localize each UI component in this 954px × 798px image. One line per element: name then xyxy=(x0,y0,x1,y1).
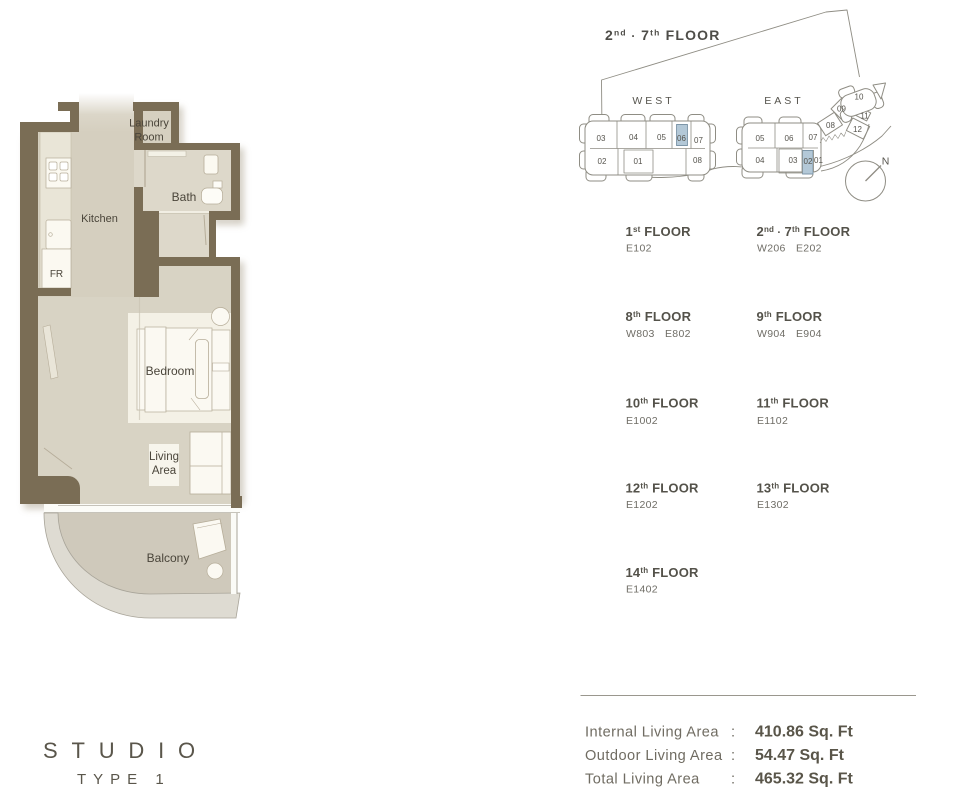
svg-text:14th FLOOR: 14th FLOOR xyxy=(626,565,700,580)
svg-text:Total Living Area: Total Living Area xyxy=(585,772,700,788)
svg-text:10th FLOOR: 10th FLOOR xyxy=(626,396,700,411)
svg-text:WEST: WEST xyxy=(632,95,674,107)
svg-text:04: 04 xyxy=(629,133,638,142)
svg-text::: : xyxy=(731,725,736,741)
svg-text:07: 07 xyxy=(694,136,703,145)
svg-text:Internal Living Area: Internal Living Area xyxy=(585,725,719,741)
svg-text:2nd · 7th FLOOR: 2nd · 7th FLOOR xyxy=(757,224,851,239)
svg-text:05: 05 xyxy=(657,133,666,142)
svg-text:Bedroom: Bedroom xyxy=(146,364,195,378)
svg-text:04: 04 xyxy=(756,156,765,165)
svg-text:Balcony: Balcony xyxy=(147,551,190,565)
svg-text:06: 06 xyxy=(677,134,686,143)
svg-text:1st FLOOR: 1st FLOOR xyxy=(626,224,692,239)
svg-text:12: 12 xyxy=(853,125,862,134)
svg-text:11: 11 xyxy=(860,112,869,121)
svg-text:Laundry: Laundry xyxy=(129,118,169,130)
svg-text:E1002: E1002 xyxy=(626,415,658,427)
svg-text:E102: E102 xyxy=(626,243,652,255)
svg-text:E1202: E1202 xyxy=(626,499,658,511)
svg-text:07: 07 xyxy=(809,133,818,142)
svg-text:E1102: E1102 xyxy=(757,415,788,427)
svg-text:Living: Living xyxy=(149,451,179,463)
svg-text:01: 01 xyxy=(634,157,643,166)
svg-text:9th FLOOR: 9th FLOOR xyxy=(757,309,823,324)
svg-text:05: 05 xyxy=(756,134,765,143)
svg-text:E1402: E1402 xyxy=(626,584,658,596)
svg-text:2nd · 7th FLOOR: 2nd · 7th FLOOR xyxy=(605,27,721,43)
svg-text:06: 06 xyxy=(785,134,794,143)
svg-text:03: 03 xyxy=(789,156,798,165)
svg-text:08: 08 xyxy=(693,156,702,165)
svg-text:TYPE 1: TYPE 1 xyxy=(77,771,171,788)
svg-text::: : xyxy=(731,748,736,764)
svg-text::: : xyxy=(731,772,736,788)
svg-text:11th FLOOR: 11th FLOOR xyxy=(757,396,830,411)
svg-text:N: N xyxy=(882,156,890,168)
svg-text:Room: Room xyxy=(134,132,163,144)
svg-text:08: 08 xyxy=(826,121,835,130)
svg-text:01: 01 xyxy=(814,156,823,165)
svg-text:E202: E202 xyxy=(796,243,822,255)
svg-text:E1302: E1302 xyxy=(757,499,789,511)
svg-text:FR: FR xyxy=(50,269,63,280)
svg-text:Outdoor Living Area: Outdoor Living Area xyxy=(585,748,723,764)
svg-text:410.86 Sq. Ft: 410.86 Sq. Ft xyxy=(755,724,853,741)
svg-text:Bath: Bath xyxy=(172,190,197,204)
svg-text:W206: W206 xyxy=(757,243,786,255)
svg-text:03: 03 xyxy=(597,134,606,143)
svg-text:8th FLOOR: 8th FLOOR xyxy=(626,309,692,324)
svg-text:02: 02 xyxy=(598,157,607,166)
svg-text:Area: Area xyxy=(152,465,177,477)
svg-text:13th FLOOR: 13th FLOOR xyxy=(757,481,831,496)
svg-text:W803: W803 xyxy=(626,328,655,340)
svg-text:W904: W904 xyxy=(757,328,786,340)
svg-text:EAST: EAST xyxy=(764,95,803,107)
svg-text:12th FLOOR: 12th FLOOR xyxy=(626,481,700,496)
svg-text:E904: E904 xyxy=(796,328,822,340)
svg-text:54.47 Sq. Ft: 54.47 Sq. Ft xyxy=(755,747,845,764)
svg-text:465.32 Sq. Ft: 465.32 Sq. Ft xyxy=(755,771,853,788)
svg-text:02: 02 xyxy=(804,157,813,166)
svg-text:Kitchen: Kitchen xyxy=(81,213,118,225)
svg-text:09: 09 xyxy=(837,105,846,114)
svg-text:E802: E802 xyxy=(665,328,691,340)
svg-text:STUDIO: STUDIO xyxy=(43,738,209,763)
svg-text:10: 10 xyxy=(855,93,864,102)
